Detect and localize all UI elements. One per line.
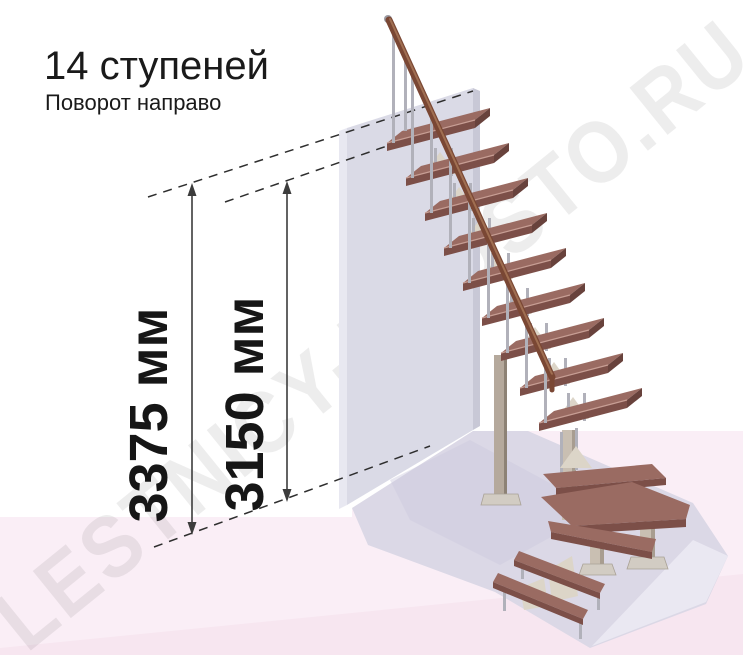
- center-column-base-plate: [579, 564, 616, 575]
- dimension-label-floor-to-top-step: 3150 мм: [215, 296, 275, 511]
- wall-left-edge: [339, 128, 347, 509]
- page-subtitle: Поворот направо: [45, 90, 221, 115]
- baluster: [392, 27, 395, 143]
- baluster: [411, 68, 414, 178]
- right-column-base-plate: [627, 557, 668, 569]
- wall-right-edge: [473, 88, 480, 430]
- stair-diagram-svg: LESTNICY-PROSTO.RU: [0, 0, 743, 655]
- baluster: [430, 110, 433, 213]
- left-post-base-plate: [481, 494, 521, 505]
- left-support-post-shade: [504, 355, 507, 497]
- dimension-label-total-rise: 3375 мм: [119, 307, 179, 522]
- page-title: 14 ступеней: [44, 44, 269, 88]
- stair-diagram: LESTNICY-PROSTO.RU: [0, 0, 743, 655]
- baluster: [449, 151, 452, 248]
